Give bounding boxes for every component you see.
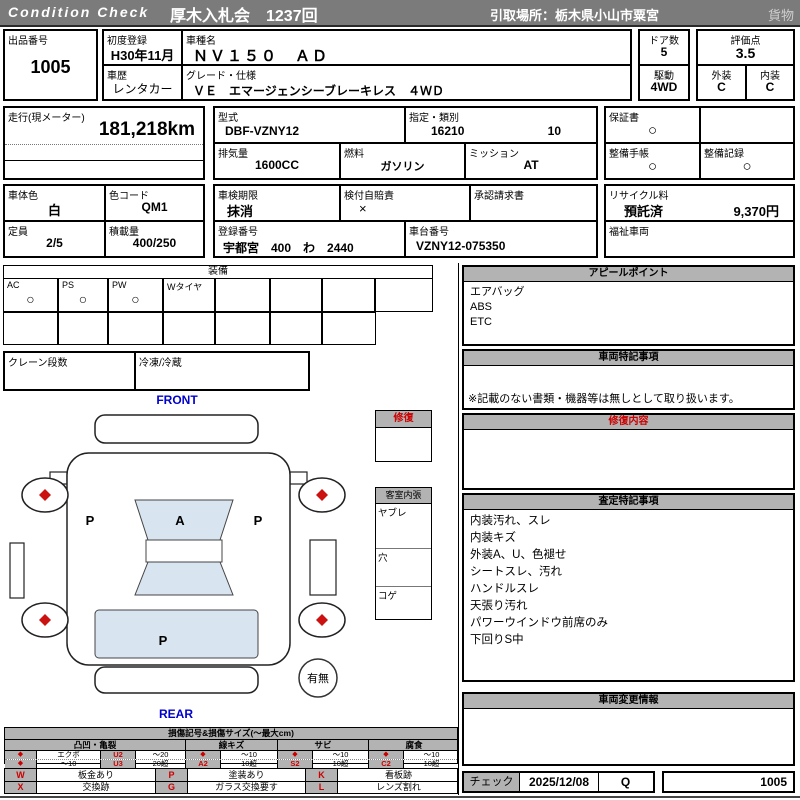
presence-text: 有無 (307, 671, 329, 685)
code-letter: L (306, 782, 338, 793)
legend-size: 10超 (313, 760, 369, 768)
code-meaning: 塗装あり (188, 769, 306, 781)
cabin-item-label: ヤブレ (378, 505, 407, 519)
vin-cell: 車台番号 VZNY12-075350 (405, 221, 598, 258)
code-letter: X (5, 782, 37, 793)
code-meaning: レンズ割れ (338, 782, 459, 793)
rear-window-panel (135, 562, 233, 595)
right-side-sill (310, 540, 336, 595)
fuel-value: ガソリン (341, 158, 464, 174)
appeal-title: アピールポイント (464, 267, 793, 282)
equipment-title-text: 装備 (208, 266, 228, 277)
legend-symbol: ◆ (5, 760, 37, 768)
equipment-mark: ○ (109, 291, 162, 307)
legend-size: ～10 (313, 751, 369, 759)
approval-cell: 承認請求書 (470, 184, 598, 221)
cabin-item-tear: ヤブレ (376, 504, 431, 549)
appeal-line: ABS (470, 300, 525, 315)
legend-data-row-2: ◆ ～10 U3 20超 A2 10超 S2 10超 C2 10超 (5, 760, 457, 768)
repair-code-table: W 板金あり P 塗装あり K 看板跡 X 交換跡 G ガラス交換要す L レン… (4, 768, 458, 794)
exterior-grade-cell: 外装 C (696, 65, 746, 101)
check-inspector: Q (598, 773, 653, 791)
repair-content-panel: 修復内容 (462, 413, 795, 490)
brand-logo: Condition Check (8, 4, 149, 20)
cabin-item-label: 穴 (378, 550, 388, 564)
insurance-cell: 検付自賠責 × (340, 184, 470, 221)
assessment-line: 内装キズ (470, 530, 608, 547)
legend-code: A2 (186, 760, 221, 768)
vin-value: VZNY12-075350 (416, 239, 505, 253)
code-meaning: 板金あり (37, 769, 156, 781)
model-value: ＮＶ１５０ ＡＤ (193, 45, 329, 66)
cabin-interior-title: 客室内張 (376, 488, 431, 504)
rear-bumper (95, 667, 258, 693)
inspection-value: 抹消 (227, 201, 253, 220)
capacity-cell: 定員 2/5 (3, 221, 105, 258)
auction-title: 厚木入札会 1237回 (170, 2, 318, 26)
class-label: 指定・類別 (409, 109, 459, 124)
legend-symbol: ◆ (186, 751, 221, 759)
mileage-box: 走行(現メーター) 181,218km (3, 106, 205, 180)
equipment-cell-empty (322, 278, 375, 312)
repair-mini-box: 修復 (375, 410, 432, 462)
displacement-value: 1600CC (215, 158, 339, 172)
equipment-mark: ○ (59, 291, 107, 307)
equipment-cell-empty (58, 312, 108, 345)
warranty-mark: ○ (606, 122, 699, 139)
check-date: 2025/12/08 (520, 773, 599, 791)
code-letter: P (156, 769, 188, 781)
pickup-location: 引取場所：栃木県小山市粟宮 (490, 5, 659, 24)
warranty-blank-cell (700, 106, 795, 143)
check-label: チェック (464, 773, 520, 791)
assessment-line: ハンドルスレ (470, 581, 608, 598)
lot-label: 出品番号 (8, 32, 48, 47)
code-letter: G (156, 782, 188, 793)
class-cell: 指定・類別 16210 10 (405, 106, 598, 143)
front-label: FRONT (137, 393, 217, 407)
maintenance-book-cell: 整備手帳 ○ (604, 143, 700, 180)
equipment-cell-wtire: Wタイヤ (163, 278, 215, 312)
appeal-lines: エアバッグ ABS ETC (470, 285, 525, 330)
check-lot-value: 1005 (760, 773, 787, 791)
load-cell: 積載量 400/250 (105, 221, 205, 258)
doors-cell: ドア数 5 (638, 29, 690, 65)
assessment-line: 下回りS中 (470, 632, 608, 649)
legend-group-name: サビ (278, 740, 369, 750)
vin-label: 車台番号 (409, 223, 449, 238)
fridge-label: 冷凍/冷蔵 (139, 354, 182, 369)
auction-condition-sheet: Condition Check 厚木入札会 1237回 引取場所：栃木県小山市粟… (0, 0, 800, 800)
assessment-line: パワーウインドウ前席のみ (470, 615, 608, 632)
transmission-cell: ミッション AT (465, 143, 598, 180)
assessment-line: 内装汚れ、スレ (470, 513, 608, 530)
vehicle-notes-text: ※記載のない書類・機器等は無しとして取り扱います。 (468, 390, 740, 406)
vehicle-notes-panel: 車両特記事項 ※記載のない書類・機器等は無しとして取り扱います。 (462, 349, 795, 410)
load-value: 400/250 (106, 236, 203, 250)
cargo-panel (95, 610, 258, 658)
check-box: チェック 2025/12/08 Q (462, 771, 655, 793)
history-value: レンタカー (104, 80, 181, 97)
code-letter: W (5, 769, 37, 781)
assessment-line: 外装A、U、色褪せ (470, 547, 608, 564)
equipment-cell-ac: AC ○ (3, 278, 58, 312)
maintenance-record-cell: 整備記録 ○ (700, 143, 795, 180)
code-row-2: X 交換跡 G ガラス交換要す L レンズ割れ (5, 782, 457, 793)
legend-group-name: 線キズ (186, 740, 278, 750)
code-meaning: 看板跡 (338, 769, 459, 781)
assessment-line: シートスレ、汚れ (470, 564, 608, 581)
mileage-divider-solid (5, 160, 203, 161)
grade-label: グレード・仕様 (186, 67, 256, 82)
repair-mini-title: 修復 (376, 411, 431, 428)
interior-grade-cell: 内装 C (746, 65, 795, 101)
plate-label: 登録番号 (218, 223, 258, 238)
type-value: DBF-VZNY12 (225, 124, 299, 138)
legend-group-name: 腐食 (369, 740, 459, 750)
exterior-value: C (698, 80, 745, 94)
code-meaning: ガラス交換要す (188, 782, 306, 793)
score-value: 3.5 (698, 45, 793, 61)
lot-number-cell: 出品番号 1005 (3, 29, 98, 101)
mileage-label: 走行(現メーター) (8, 109, 85, 124)
history-cell: 車歴 レンタカー (102, 65, 182, 101)
equipment-cell-empty (322, 312, 376, 345)
first-registration-cell: 初度登録 H30年11月 (102, 29, 182, 65)
legend-group-row: 凸凹・亀裂 線キズ サビ 腐食 (5, 740, 457, 751)
cabin-interior-box: 客室内張 ヤブレ 穴 コゲ (375, 487, 432, 620)
model-cell: 車種名 ＮＶ１５０ ＡＤ (182, 29, 632, 65)
repair-content-title: 修復内容 (464, 415, 793, 430)
legend-size: 20超 (136, 760, 186, 768)
equipment-mark: ○ (4, 291, 57, 307)
cabin-item-label: コゲ (378, 588, 397, 602)
fridge-cell: 冷凍/冷蔵 (135, 351, 310, 391)
legend-data-row-1: ◆ エクボ U2 ～20 ◆ ～10 ◆ ～10 ◆ ～10 (5, 751, 457, 760)
welfare-cell: 福祉車両 (604, 221, 795, 258)
equipment-cell-pw: PW ○ (108, 278, 163, 312)
insurance-label: 検付自賠責 (344, 187, 394, 202)
code-meaning: 交換跡 (37, 782, 156, 793)
crane-cell: クレーン段数 (3, 351, 135, 391)
legend-size: 10超 (404, 760, 459, 768)
lot-value: 1005 (5, 57, 96, 78)
cabin-item-hole: 穴 (376, 549, 431, 587)
equipment-cell-empty (270, 278, 322, 312)
check-lot-box: 1005 (662, 771, 795, 793)
drive-cell: 駆動 4WD (638, 65, 690, 101)
assessment-panel: 査定特記事項 内装汚れ、スレ 内装キズ 外装A、U、色褪せ シートスレ、汚れ ハ… (462, 493, 795, 682)
legend-symbol: ◆ (5, 751, 37, 759)
inspection-label: 車検期限 (218, 187, 258, 202)
equipment-cell-empty (163, 312, 215, 345)
equipment-cell-ps: PS ○ (58, 278, 108, 312)
left-side-sill (10, 543, 24, 598)
inspection-cell: 車検期限 抹消 (213, 184, 340, 221)
appeal-panel: アピールポイント エアバッグ ABS ETC (462, 265, 795, 346)
grade-value: ＶＥ エマージェンシーブレーキレス ４ＷＤ (193, 82, 444, 99)
roof-panel (146, 540, 222, 562)
fuel-cell: 燃料 ガソリン (340, 143, 465, 180)
capacity-value: 2/5 (5, 236, 104, 250)
equipment-cell-empty (375, 278, 433, 312)
right-door-mark: P (254, 513, 263, 528)
legend-code: S2 (278, 760, 313, 768)
plate-value: 宇都宮 400 わ 2440 (223, 239, 354, 256)
appeal-line: エアバッグ (470, 285, 525, 300)
recycle-fee: 9,370円 (733, 201, 779, 220)
warranty-cell: 保証書 ○ (604, 106, 700, 143)
category-badge: 貨物 (768, 5, 794, 24)
maintenance-book-mark: ○ (606, 158, 699, 175)
crane-label: クレーン段数 (8, 354, 68, 369)
rear-label: REAR (136, 707, 216, 721)
maintenance-record-mark: ○ (701, 158, 793, 175)
legend-size: ～10 (221, 751, 278, 759)
legend-size: 10超 (221, 760, 278, 768)
grade-cell: グレード・仕様 ＶＥ エマージェンシーブレーキレス ４ＷＤ (182, 65, 632, 101)
left-door-mark: P (86, 513, 95, 528)
change-info-panel: 車両変更情報 (462, 692, 795, 766)
body-color-value: 白 (5, 200, 104, 219)
drive-value: 4WD (640, 80, 688, 94)
assessment-line: 天張り汚れ (470, 598, 608, 615)
class-sub-value: 10 (548, 124, 561, 138)
cargo-mark: P (159, 633, 168, 648)
legend-size: ～20 (136, 751, 186, 759)
equipment-cell-empty (215, 312, 270, 345)
type-code-cell: 型式 DBF-VZNY12 (213, 106, 405, 143)
change-info-title: 車両変更情報 (464, 694, 793, 709)
legend-group-name: 凸凹・亀裂 (5, 740, 186, 750)
right-mirror (290, 472, 307, 484)
class-no-value: 16210 (431, 124, 464, 138)
assessment-lines: 内装汚れ、スレ 内装キズ 外装A、U、色褪せ シートスレ、汚れ ハンドルスレ 天… (470, 513, 608, 649)
legend-symbol: ◆ (278, 751, 313, 759)
plate-cell: 登録番号 宇都宮 400 わ 2440 (213, 221, 405, 258)
body-color-cell: 車体色 白 (3, 184, 105, 221)
legend-symbol: ◆ (369, 751, 404, 759)
legend-size: ～10 (37, 760, 101, 768)
windshield-mark: A (175, 513, 185, 528)
equipment-cell-empty (215, 278, 270, 312)
equipment-cell-empty (108, 312, 163, 345)
front-bumper (95, 415, 258, 443)
recycle-label: リサイクル料 (609, 187, 669, 202)
doors-value: 5 (640, 45, 688, 59)
type-label: 型式 (218, 109, 238, 124)
transmission-value: AT (466, 158, 596, 172)
equipment-label: Wタイヤ (167, 280, 202, 293)
damage-legend-table: 損傷記号&損傷サイズ(～最大cm) 凸凹・亀裂 線キズ サビ 腐食 ◆ エクボ … (4, 727, 458, 764)
first-reg-value: H30年11月 (104, 45, 181, 64)
equipment-title: 装備 (3, 265, 433, 279)
appeal-line: ETC (470, 315, 525, 330)
insurance-mark: × (359, 201, 367, 216)
legend-title: 損傷記号&損傷サイズ(～最大cm) (5, 728, 457, 740)
color-code-value: QM1 (106, 200, 203, 214)
mileage-value: 181,218km (99, 119, 195, 141)
legend-code: U3 (101, 760, 136, 768)
score-cell: 評価点 3.5 (696, 29, 795, 65)
legend-text: エクボ (37, 751, 101, 759)
approval-label: 承認請求書 (474, 187, 524, 202)
assessment-title: 査定特記事項 (464, 495, 793, 510)
recycle-cell: リサイクル料 預託済 9,370円 (604, 184, 795, 221)
cabin-item-burn: コゲ (376, 587, 431, 621)
code-letter: K (306, 769, 338, 781)
bottom-rule (0, 796, 800, 798)
displacement-cell: 排気量 1600CC (213, 143, 340, 180)
color-code-cell: 色コード QM1 (105, 184, 205, 221)
equipment-label: PW (112, 280, 127, 290)
equipment-cell-empty (270, 312, 322, 345)
vehicle-notes-title: 車両特記事項 (464, 351, 793, 366)
code-row-1: W 板金あり P 塗装あり K 看板跡 (5, 769, 457, 782)
legend-size: ～10 (404, 751, 459, 759)
legend-code: U2 (101, 751, 136, 759)
mileage-divider-dotted (5, 144, 203, 145)
legend-code: C2 (369, 760, 404, 768)
title-bar: Condition Check 厚木入札会 1237回 引取場所：栃木県小山市粟… (0, 0, 800, 27)
welfare-label: 福祉車両 (609, 223, 649, 238)
equipment-cell-empty (3, 312, 58, 345)
recycle-status: 預託済 (624, 201, 663, 220)
interior-value: C (747, 80, 793, 94)
equipment-label: AC (7, 280, 20, 290)
equipment-label: PS (62, 280, 74, 290)
